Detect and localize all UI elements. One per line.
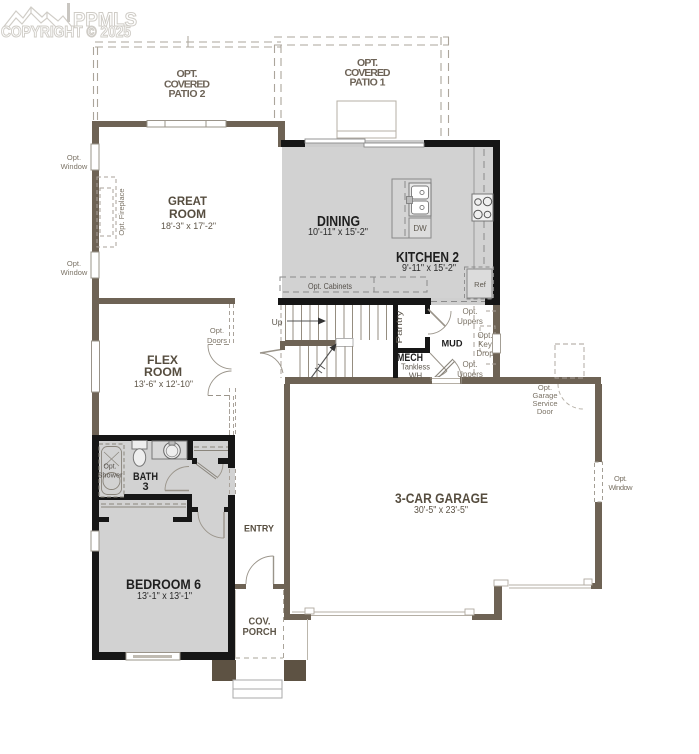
svg-text:13'-1" x 13'-1": 13'-1" x 13'-1" — [137, 591, 192, 602]
svg-text:Shower: Shower — [98, 471, 123, 480]
svg-text:PORCH: PORCH — [243, 627, 277, 638]
svg-text:30'-5" x 23'-5": 30'-5" x 23'-5" — [414, 505, 468, 516]
svg-text:Key: Key — [478, 340, 492, 349]
svg-text:Window: Window — [61, 162, 88, 171]
svg-text:Uppers: Uppers — [457, 317, 483, 326]
svg-text:Up: Up — [272, 317, 283, 327]
svg-text:Doors: Doors — [207, 336, 227, 345]
svg-text:13'-6" x 12'-10": 13'-6" x 12'-10" — [134, 379, 193, 390]
svg-text:Opt.: Opt. — [67, 153, 81, 162]
svg-text:Opt. Fireplace: Opt. Fireplace — [117, 188, 126, 235]
svg-text:ENTRY: ENTRY — [244, 524, 275, 535]
svg-text:Window: Window — [61, 268, 88, 277]
svg-text:FLEX: FLEX — [147, 355, 178, 367]
svg-text:3-CAR GARAGE: 3-CAR GARAGE — [395, 491, 488, 506]
svg-text:MUD: MUD — [442, 339, 463, 350]
svg-text:Opt.: Opt. — [462, 307, 477, 316]
svg-text:DW: DW — [413, 224, 427, 233]
svg-text:Opt.: Opt. — [104, 462, 117, 471]
svg-text:Opt.: Opt. — [477, 331, 492, 340]
svg-text:9'-11" x 15'-2": 9'-11" x 15'-2" — [402, 263, 456, 274]
svg-text:WH: WH — [409, 372, 423, 381]
svg-text:Ref: Ref — [474, 280, 487, 289]
svg-text:ROOM: ROOM — [169, 209, 206, 221]
svg-text:GREAT: GREAT — [168, 196, 207, 208]
svg-text:Tankless: Tankless — [401, 363, 430, 372]
svg-text:10'-11" x 15'-2": 10'-11" x 15'-2" — [308, 227, 368, 238]
svg-text:PATIO 2: PATIO 2 — [169, 88, 206, 100]
svg-text:Opt. Cabinets: Opt. Cabinets — [308, 281, 352, 291]
svg-text:BEDROOM 6: BEDROOM 6 — [126, 577, 201, 592]
svg-text:18'-3" x 17'-2": 18'-3" x 17'-2" — [161, 221, 216, 232]
svg-text:Opt.: Opt. — [462, 360, 477, 369]
svg-text:Window: Window — [609, 483, 634, 492]
svg-text:Uppers: Uppers — [457, 370, 483, 379]
svg-text:Pantry: Pantry — [395, 311, 404, 344]
svg-text:PATIO 1: PATIO 1 — [350, 77, 386, 89]
svg-text:Opt.: Opt. — [67, 259, 81, 268]
svg-text:Opt.: Opt. — [210, 326, 224, 335]
svg-text:3: 3 — [142, 481, 148, 493]
svg-text:Drop: Drop — [476, 349, 494, 358]
svg-text:Door: Door — [537, 407, 554, 416]
svg-text:ROOM: ROOM — [144, 367, 182, 379]
svg-text:COPYRIGHT © 2025: COPYRIGHT © 2025 — [1, 24, 131, 41]
svg-text:Opt.: Opt. — [614, 474, 627, 483]
